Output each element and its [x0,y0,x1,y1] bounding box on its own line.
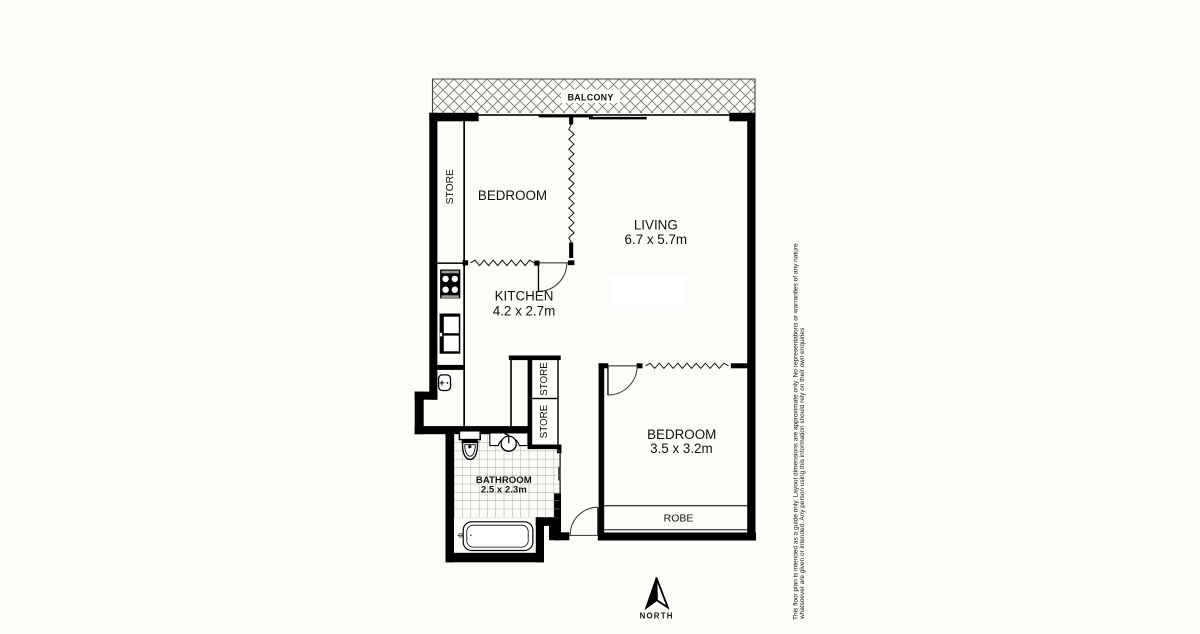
svg-text:4.2 x 2.7m: 4.2 x 2.7m [493,304,556,319]
svg-text:BALCONY: BALCONY [568,93,614,103]
svg-text:KITCHEN: KITCHEN [495,288,554,303]
svg-text:ROBE: ROBE [664,512,694,524]
svg-text:BEDROOM: BEDROOM [647,427,716,442]
svg-text:STORE: STORE [539,362,550,396]
svg-text:STORE: STORE [445,169,456,204]
svg-text:2.5 x 2.3m: 2.5 x 2.3m [481,485,527,496]
svg-text:whatsoever are given or intend: whatsoever are given or intended. Any pe… [799,328,806,620]
svg-text:LIVING: LIVING [634,218,678,233]
svg-text:NORTH: NORTH [640,611,674,620]
svg-text:3.5 x 3.2m: 3.5 x 3.2m [650,441,713,456]
svg-text:STORE: STORE [539,404,550,438]
svg-text:6.7 x 5.7m: 6.7 x 5.7m [625,232,688,247]
svg-text:BEDROOM: BEDROOM [478,188,547,203]
